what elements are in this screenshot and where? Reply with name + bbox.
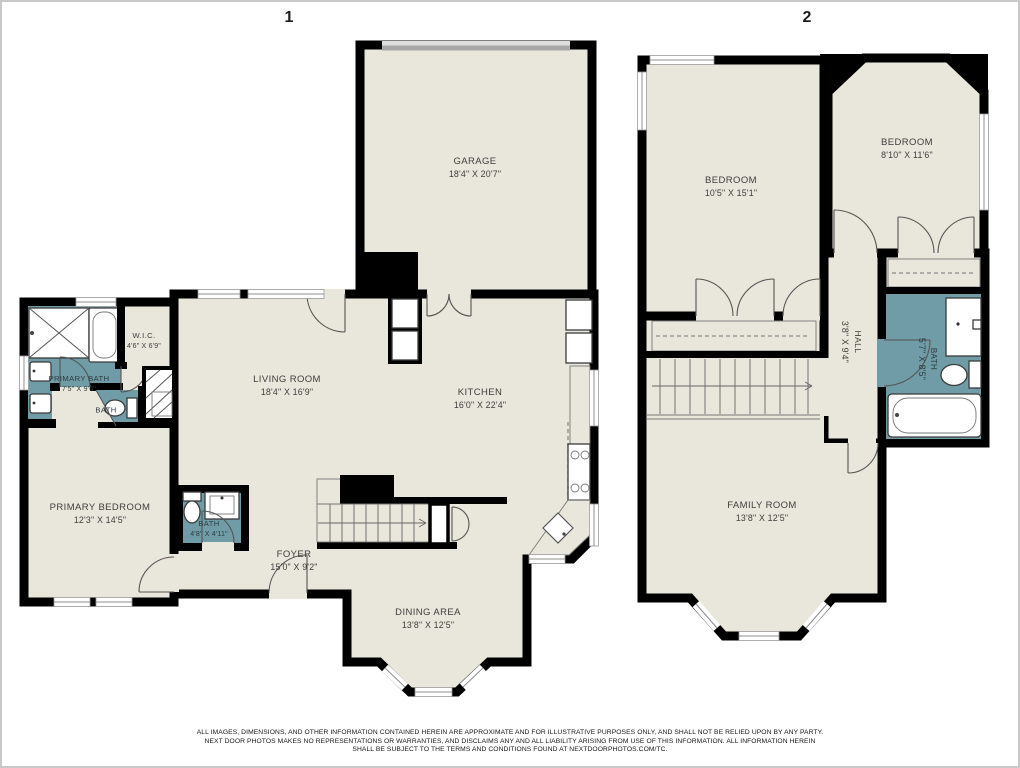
landing-outline <box>642 316 824 420</box>
room-label-wic: W.I.C. 4'6" X 6'9" <box>127 331 161 351</box>
window <box>529 555 565 564</box>
room-label-garage: GARAGE 18'4" X 20'7" <box>449 155 501 181</box>
floorplan-drawing <box>2 2 1020 768</box>
floor-1-number: 1 <box>285 9 294 27</box>
floor-2-number: 2 <box>803 9 812 27</box>
window <box>650 56 714 65</box>
window <box>980 114 989 210</box>
stair-closet <box>430 504 448 544</box>
floor-1-plan <box>20 41 599 697</box>
room-label-foyer: FOYER 15'0" X 9'2" <box>270 548 317 574</box>
room-label-living-room: LIVING ROOM 18'4" X 16'9" <box>253 373 321 399</box>
room-label-bedroom-1: BEDROOM 10'5" X 15'1" <box>705 174 757 200</box>
sink <box>30 394 51 413</box>
room-label-half-bath: BATH 4'8" X 4'11" <box>190 519 228 539</box>
window <box>198 290 240 299</box>
room-label-bath-2: BATH 5'7" X 8'5" <box>915 338 939 380</box>
window <box>739 632 779 641</box>
window <box>54 598 90 607</box>
room-label-primary-bath: PRIMARY BATH 7'5" X 9'6" <box>49 374 110 394</box>
window <box>638 72 647 130</box>
garage-door <box>382 41 570 46</box>
door-gap <box>202 542 234 552</box>
family-room-floor <box>642 414 882 636</box>
window <box>96 598 132 607</box>
room-label-toilet-room: BATH <box>95 406 116 417</box>
room-label-hall: HALL 3'8" X 9'4" <box>839 321 863 363</box>
stove <box>568 444 590 500</box>
room-label-primary-bedroom: PRIMARY BEDROOM 12'3" X 14'5" <box>50 501 151 527</box>
room-label-dining-area: DINING AREA 13'8" X 12'5" <box>395 606 461 632</box>
bathtub <box>89 308 120 362</box>
pantry-cabinet <box>566 333 592 363</box>
floorplan-page: 1 2 GARAGE 18'4" X 20'7" LIVING ROOM 18'… <box>0 0 1020 768</box>
entry-closet <box>388 292 422 364</box>
window <box>590 504 599 546</box>
window <box>76 298 116 307</box>
room-label-kitchen: KITCHEN 16'0" X 22'4" <box>454 386 506 412</box>
window <box>590 370 599 426</box>
vanity-sink <box>205 492 239 519</box>
room-label-bedroom-2: BEDROOM 8'10" X 11'6" <box>881 136 933 162</box>
door-gap <box>877 339 887 387</box>
vanity-sink <box>946 298 981 356</box>
window <box>248 290 324 299</box>
disclaimer: ALL IMAGES, DIMENSIONS, AND OTHER INFORM… <box>2 729 1018 755</box>
window <box>20 356 29 390</box>
shower <box>29 308 89 358</box>
window <box>415 688 452 697</box>
basement-stairs-hatch <box>144 368 174 420</box>
room-label-family-room: FAMILY ROOM 13'8" X 12'5" <box>727 499 797 525</box>
bathtub <box>888 394 981 437</box>
refrigerator <box>566 300 592 330</box>
